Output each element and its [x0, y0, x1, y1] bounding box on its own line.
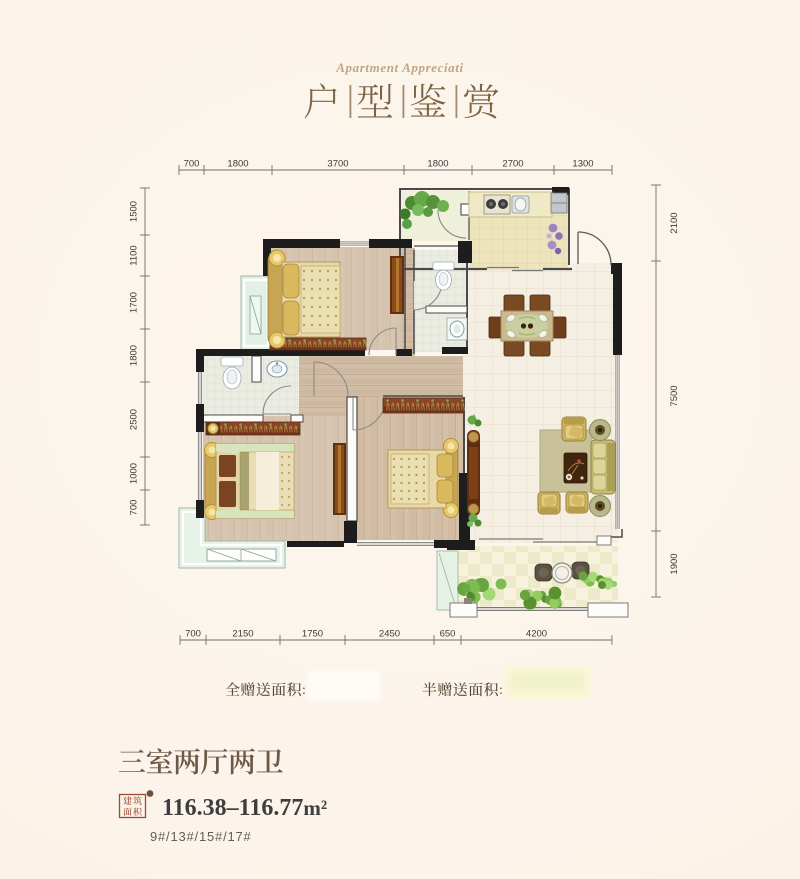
svg-text:2450: 2450 — [379, 629, 400, 640]
svg-text:2700: 2700 — [502, 159, 523, 170]
svg-text:700: 700 — [185, 629, 201, 640]
svg-text:2150: 2150 — [232, 629, 253, 640]
svg-text:700: 700 — [129, 500, 140, 516]
svg-text::: : — [302, 683, 306, 698]
svg-text:1100: 1100 — [129, 245, 140, 265]
svg-text:650: 650 — [440, 629, 456, 640]
svg-text:700: 700 — [184, 159, 200, 170]
svg-text:1800: 1800 — [129, 345, 140, 366]
svg-text:3700: 3700 — [327, 159, 348, 170]
svg-text:1300: 1300 — [572, 159, 593, 170]
svg-text:1800: 1800 — [227, 159, 248, 170]
svg-text::: : — [499, 683, 503, 698]
svg-text:1000: 1000 — [129, 463, 140, 484]
svg-text:1700: 1700 — [129, 292, 140, 313]
svg-text:4200: 4200 — [526, 629, 547, 640]
svg-text:1500: 1500 — [129, 201, 140, 222]
svg-text:1900: 1900 — [669, 553, 680, 574]
svg-text:2100: 2100 — [669, 212, 680, 233]
svg-text:7500: 7500 — [669, 385, 680, 406]
svg-text:1750: 1750 — [302, 629, 323, 640]
svg-text:1800: 1800 — [427, 159, 448, 170]
svg-text:2500: 2500 — [129, 409, 140, 430]
